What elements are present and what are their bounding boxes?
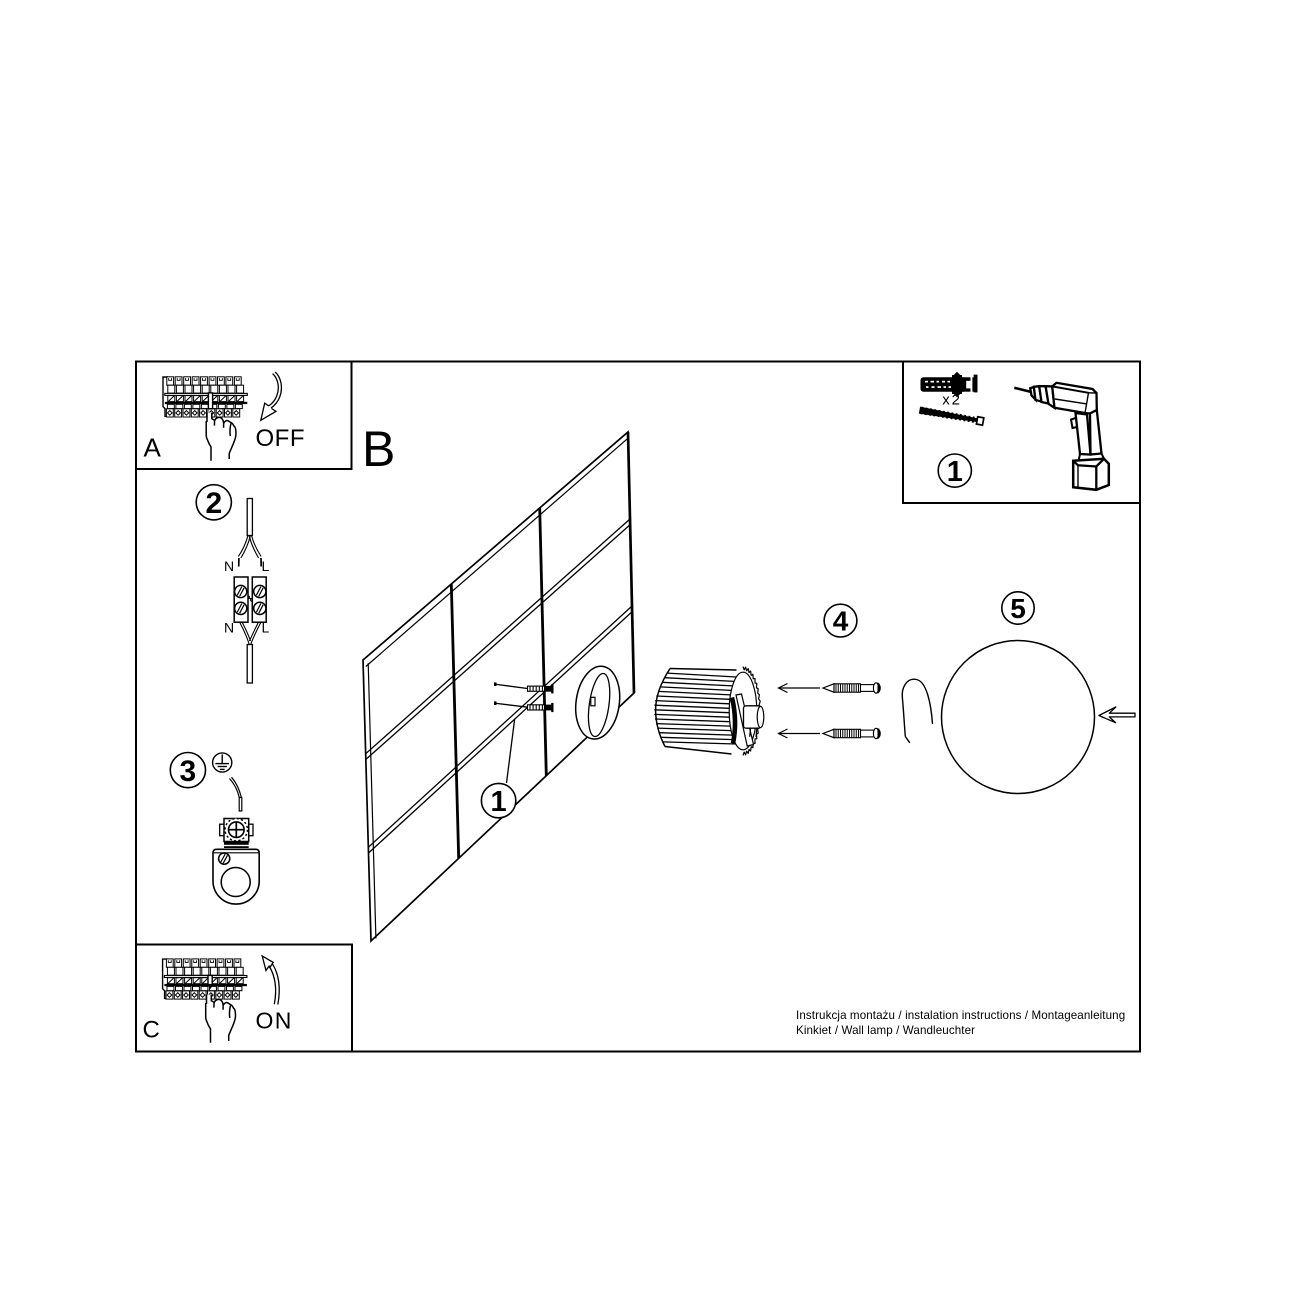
svg-text:x2: x2 [942,392,961,409]
svg-text:1: 1 [491,786,507,818]
svg-text:L: L [262,558,270,574]
svg-text:4: 4 [833,606,849,637]
svg-text:3: 3 [180,755,197,788]
svg-text:C: C [143,1017,160,1044]
svg-text:ON: ON [256,1008,293,1034]
svg-text:OFF: OFF [256,425,306,452]
svg-text:N: N [224,558,234,574]
svg-text:L: L [262,620,270,636]
svg-text:N: N [224,620,234,636]
svg-text:1: 1 [947,456,963,488]
svg-text:Instrukcja montażu / instalati: Instrukcja montażu / instalation instruc… [796,1009,1125,1022]
svg-text:Kinkiet / Wall lamp / Wandleuc: Kinkiet / Wall lamp / Wandleuchter [796,1024,975,1037]
svg-text:5: 5 [1010,593,1026,624]
svg-text:2: 2 [205,487,222,520]
svg-text:B: B [362,421,395,477]
svg-text:A: A [144,433,162,463]
